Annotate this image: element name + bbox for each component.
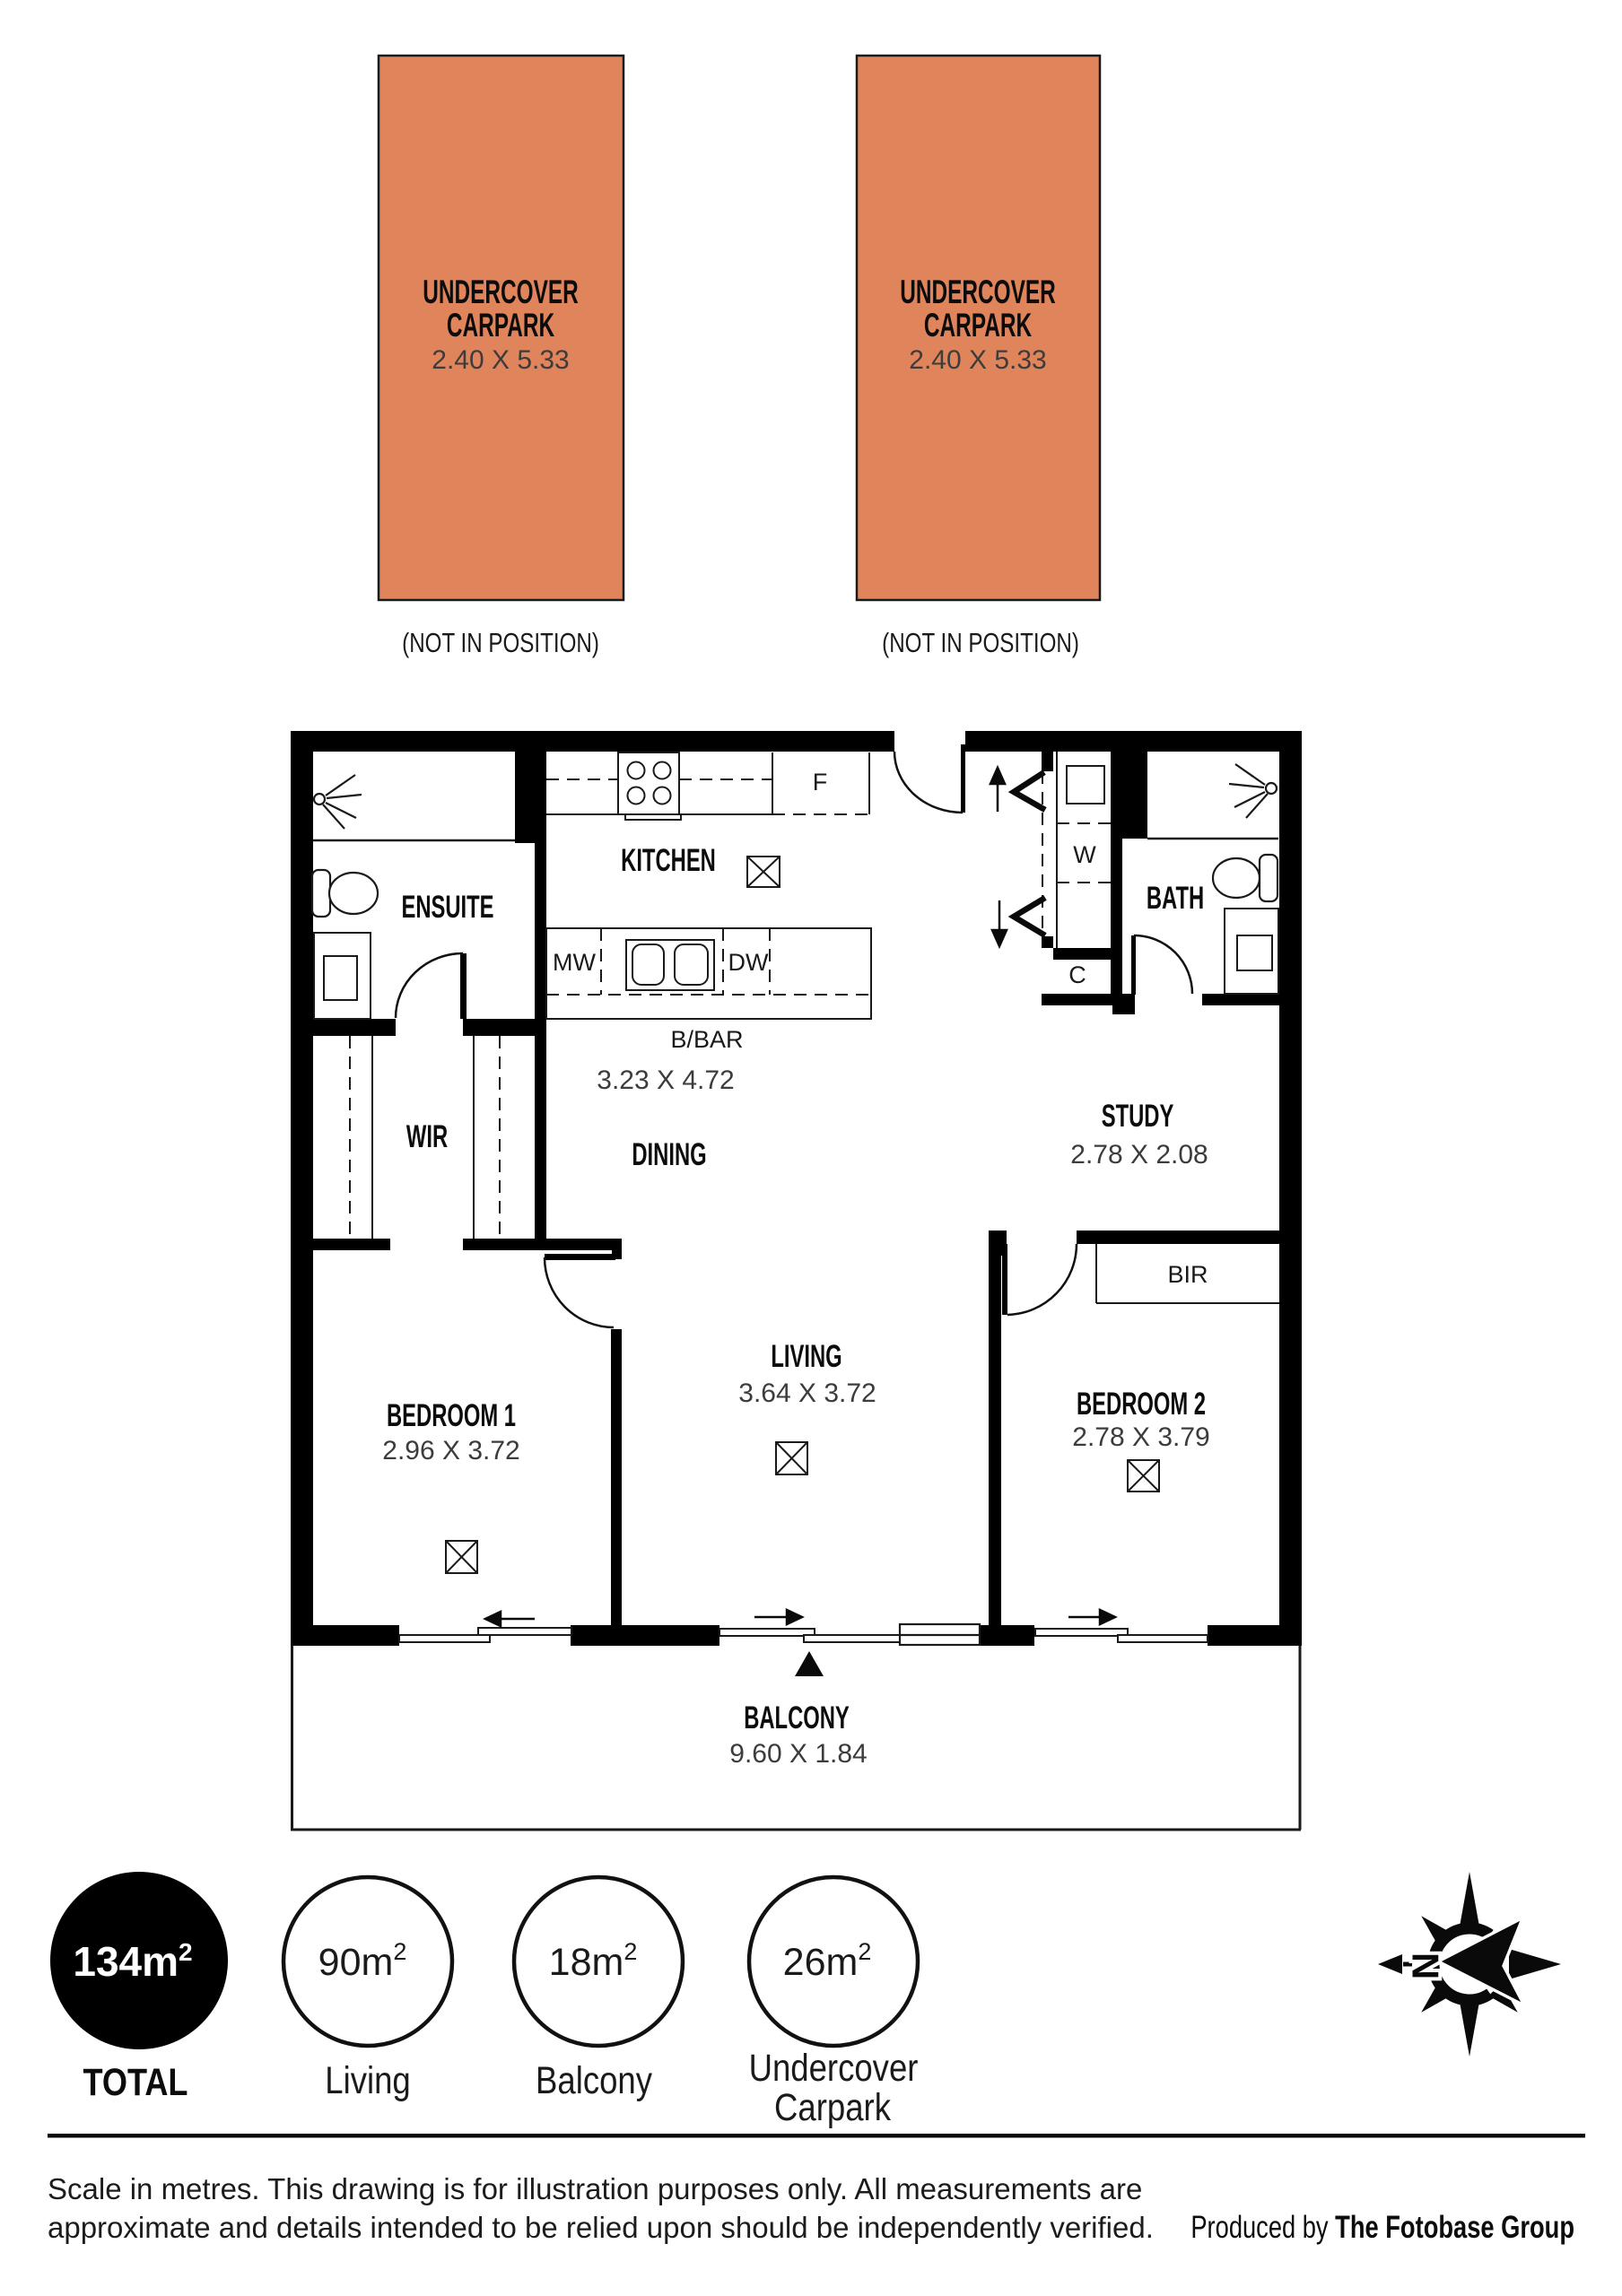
svg-text:CARPARK: CARPARK (924, 307, 1033, 344)
svg-text:CARPARK: CARPARK (447, 307, 555, 344)
svg-text:Scale in metres. This drawing: Scale in metres. This drawing is for ill… (48, 2172, 1142, 2205)
svg-text:MW: MW (553, 949, 596, 976)
svg-text:approximate and details intend: approximate and details intended to be r… (48, 2211, 1154, 2244)
svg-text:(NOT IN POSITION): (NOT IN POSITION) (882, 627, 1079, 658)
svg-text:2.78 X 2.08: 2.78 X 2.08 (1070, 1140, 1208, 1170)
svg-text:WIR: WIR (406, 1120, 448, 1155)
svg-text:BATH: BATH (1147, 882, 1204, 917)
svg-text:BALCONY: BALCONY (744, 1701, 850, 1736)
svg-text:2.78 X 3.79: 2.78 X 3.79 (1072, 1422, 1209, 1452)
svg-text:(NOT IN POSITION): (NOT IN POSITION) (402, 627, 599, 658)
svg-text:Living: Living (325, 2059, 410, 2101)
svg-text:Balcony: Balcony (536, 2059, 652, 2101)
svg-text:ENSUITE: ENSUITE (401, 891, 493, 926)
svg-text:UNDERCOVER: UNDERCOVER (900, 274, 1056, 310)
svg-text:Produced by The Fotobase Group: Produced by The Fotobase Group (1190, 2210, 1574, 2245)
svg-text:BEDROOM 2: BEDROOM 2 (1077, 1387, 1206, 1422)
svg-text:N: N (1405, 1952, 1447, 1979)
svg-text:3.23 X 4.72: 3.23 X 4.72 (597, 1065, 734, 1095)
svg-text:W: W (1073, 841, 1096, 868)
svg-text:DINING: DINING (632, 1138, 706, 1173)
svg-text:C: C (1068, 961, 1086, 988)
svg-text:STUDY: STUDY (1102, 1100, 1174, 1135)
svg-text:LIVING: LIVING (771, 1340, 842, 1375)
svg-text:F: F (813, 769, 828, 796)
svg-text:B/BAR: B/BAR (670, 1026, 743, 1053)
svg-text:134m2: 134m2 (73, 1938, 192, 1985)
svg-text:2.40 X 5.33: 2.40 X 5.33 (432, 345, 569, 375)
svg-text:9.60 X 1.84: 9.60 X 1.84 (729, 1739, 867, 1769)
svg-text:Carpark: Carpark (774, 2086, 891, 2128)
svg-text:BEDROOM 1: BEDROOM 1 (387, 1399, 516, 1434)
svg-text:BIR: BIR (1167, 1261, 1208, 1288)
svg-text:2.40 X 5.33: 2.40 X 5.33 (909, 345, 1046, 375)
svg-text:KITCHEN: KITCHEN (621, 844, 716, 879)
svg-text:2.96 X 3.72: 2.96 X 3.72 (382, 1436, 519, 1465)
svg-text:UNDERCOVER: UNDERCOVER (423, 274, 579, 310)
svg-text:3.64 X 3.72: 3.64 X 3.72 (738, 1378, 876, 1408)
svg-text:TOTAL: TOTAL (83, 2061, 188, 2104)
svg-text:DW: DW (728, 949, 769, 976)
svg-text:Undercover: Undercover (749, 2047, 919, 2089)
